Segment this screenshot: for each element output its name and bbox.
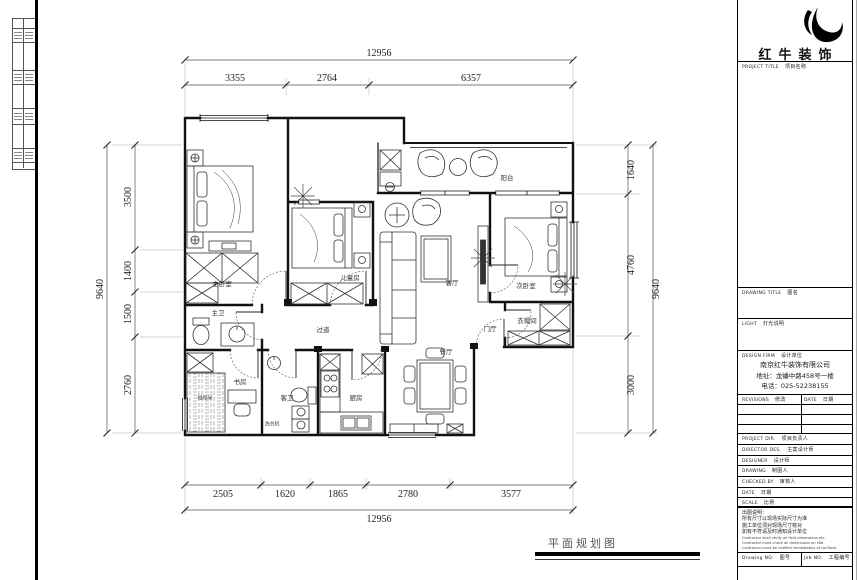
room-label-dining-room: 餐厅 <box>440 346 453 356</box>
svg-text:12956: 12956 <box>367 514 392 525</box>
svg-text:1640: 1640 <box>626 160 637 180</box>
drawing-name-label: 平面规划图 <box>548 535 618 551</box>
svg-text:9640: 9640 <box>651 279 662 299</box>
svg-text:4760: 4760 <box>626 255 637 275</box>
row-director-des: DIRECTOR DES.主案设计师 <box>738 446 852 453</box>
svg-text:2760: 2760 <box>123 375 134 395</box>
project-title-row: PROJECT TITLE项目名称 <box>738 63 852 70</box>
notes-en: Contractor shall verify all field dimens… <box>738 536 852 551</box>
room-label-entry-hall: 门厅 <box>484 323 497 333</box>
master-bath-fixtures <box>193 318 254 346</box>
svg-text:1500: 1500 <box>123 304 134 324</box>
title-block: 红牛装饰 PROJECT TITLE项目名称 DRAWING TITLE图名 L… <box>737 0 853 580</box>
firm-name: 南京红牛装饰有限公司 <box>738 360 852 371</box>
tv-wall <box>478 226 488 302</box>
tv-bench-master <box>209 241 251 251</box>
columns <box>284 299 478 352</box>
svg-text:1400: 1400 <box>123 261 134 281</box>
wardrobe-kids <box>291 283 363 304</box>
design-firm-row: DESIGN FIRM设计单位 <box>738 352 852 359</box>
sofa <box>380 232 416 344</box>
svg-text:1865: 1865 <box>328 489 348 500</box>
drawing-sheet: 12956 3355 2764 6357 2505 1620 1865 2780… <box>0 0 860 580</box>
bed-master <box>187 150 253 248</box>
light-row: LIGHT灯光说明 <box>738 320 852 327</box>
svg-text:3500: 3500 <box>123 187 134 207</box>
svg-text:3000: 3000 <box>626 375 637 395</box>
bed-kids <box>292 202 370 268</box>
walls <box>185 118 573 435</box>
row-drawing: DRAWING制图人 <box>738 467 852 474</box>
svg-text:3577: 3577 <box>501 489 521 500</box>
dining-set <box>390 348 466 433</box>
room-label-master-bedroom: 主卧室 <box>212 278 232 288</box>
sheet-outer-border <box>856 0 857 580</box>
room-label-washer: 洗衣机 <box>264 421 279 428</box>
notes-cn: 出图说明： 所有尺寸以现场实际尺寸为准 施工单位须对现场尺寸核对 如有不符请及时… <box>738 510 852 536</box>
room-label-cloakroom: 衣帽间 <box>517 315 537 325</box>
svg-text:2764: 2764 <box>317 73 337 84</box>
room-label-corridor: 过道 <box>317 324 330 334</box>
svg-text:3355: 3355 <box>225 73 245 84</box>
drawing-title-row: DRAWING TITLE图名 <box>738 289 852 296</box>
room-label-living-room: 客厅 <box>446 277 459 287</box>
row-checked-by: CHECKED BY审核人 <box>738 478 852 485</box>
svg-text:1620: 1620 <box>275 489 295 500</box>
row-designer: DESIGNER设计师 <box>738 457 852 464</box>
svg-text:12956: 12956 <box>367 48 392 59</box>
firm-address: 地址：龙蟠中路458号一楼 <box>738 371 852 382</box>
room-label-tatami: 榻榻米 <box>197 395 212 402</box>
svg-text:2505: 2505 <box>213 489 233 500</box>
coffee-table <box>421 236 451 282</box>
brand-logo-bull-icon <box>768 4 860 46</box>
svg-text:6357: 6357 <box>461 73 481 84</box>
dimension-text-right: 1640 4760 3000 9640 <box>626 160 662 395</box>
room-label-study: 书房 <box>234 376 247 386</box>
drawing-no-row: Drawing NO.图号 Job NO.工程编号 <box>738 554 852 561</box>
svg-text:9640: 9640 <box>95 279 106 299</box>
side-table-living <box>385 198 441 227</box>
row-scale: SCALE比例 <box>738 499 852 506</box>
dimension-text-left: 9640 3500 1400 1500 2760 <box>95 187 134 395</box>
balcony-furniture <box>418 150 497 177</box>
footer-rule-thick <box>535 552 700 556</box>
footer-rule-thin <box>535 559 700 560</box>
room-label-second-bedroom: 次卧室 <box>516 280 536 290</box>
floor-plan-svg: 12956 3355 2764 6357 2505 1620 1865 2780… <box>0 0 737 580</box>
extension-lines <box>112 63 657 514</box>
dimension-text-top: 12956 3355 2764 6357 <box>225 48 481 84</box>
study-furniture <box>187 353 256 432</box>
room-label-master-bath: 主卫 <box>212 307 225 317</box>
room-label-guest-bath: 客卫 <box>281 392 294 402</box>
room-label-kids-room: 儿童房 <box>340 272 360 282</box>
revisions-header: REVISIONS修改 DATE日期 <box>738 396 852 403</box>
room-label-balcony: 阳台 <box>501 172 514 182</box>
svg-text:2780: 2780 <box>398 489 418 500</box>
row-project-dir: PROJECT DIR.项目负责人 <box>738 435 852 442</box>
dimension-text-bottom: 2505 1620 1865 2780 3577 12956 <box>213 489 521 525</box>
room-label-kitchen: 厨房 <box>350 392 363 402</box>
firm-phone: 电话：025-52238155 <box>738 381 852 392</box>
row-date: DATE日期 <box>738 489 852 496</box>
service-cabinets <box>380 150 401 192</box>
